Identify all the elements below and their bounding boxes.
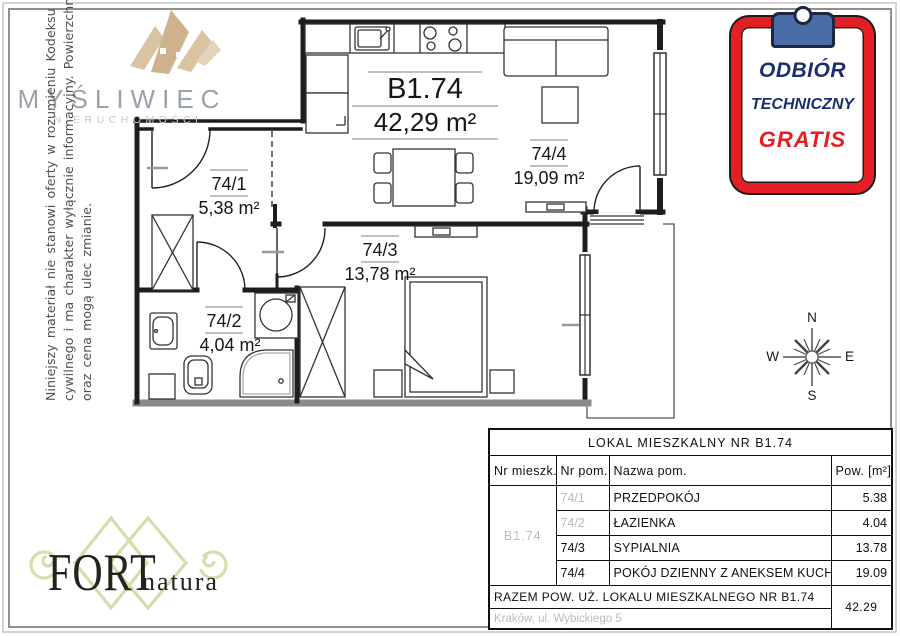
room-74-1-id: 74/1 <box>211 174 246 194</box>
room-74-2-area: 4,04 m² <box>199 335 260 355</box>
myslwiec-house-icon <box>130 10 221 74</box>
cell-room-no: 74/2 <box>556 511 609 536</box>
washing-machine <box>255 293 298 338</box>
room-74-3-id: 74/3 <box>362 240 397 260</box>
coffee-table <box>542 87 578 123</box>
developer-suffix: natura <box>142 567 219 596</box>
cell-room-area: 5.38 <box>831 486 892 511</box>
clip-hole <box>793 6 812 25</box>
kitchen-sink <box>355 27 390 50</box>
cell-room-name: POKÓJ DZIENNY Z ANEKSEM KUCHENNYM <box>609 561 831 586</box>
cell-room-area: 13.78 <box>831 536 892 561</box>
wardrobe-bedroom <box>300 287 345 397</box>
total-label: RAZEM POW. UŻ. LOKALU MIESZKALNEGO NR B1… <box>489 586 831 609</box>
header-room-no: Nr pom. <box>556 456 609 486</box>
nightstand-left <box>374 370 402 397</box>
disclaimer-line-3: oraz cena mogą ulec zmianie. <box>78 49 96 401</box>
unit-summary-table: LOKAL MIESZKALNY NR B1.74 Nr mieszk. Nr … <box>488 428 893 630</box>
kitchen-tall-cabinets <box>306 55 348 133</box>
compass-west-label: W <box>766 349 779 364</box>
myslwiec-logo: MYŚLIWIEC NIERUCHOMOŚCI <box>0 0 260 132</box>
nightstand-right <box>490 370 514 393</box>
bed <box>405 277 487 397</box>
cell-room-name: ŁAZIENKA <box>609 511 831 536</box>
toilet <box>184 356 212 394</box>
unit-id-label: B1.74 <box>387 73 463 105</box>
living-room-window <box>652 50 668 178</box>
sofa <box>504 27 608 76</box>
bedroom-window <box>578 252 592 378</box>
entrance-door <box>152 130 210 188</box>
bathroom-cabinet <box>149 374 175 399</box>
disclaimer-line-2: cywilnego i ma charakter wyłącznie infor… <box>60 49 78 401</box>
cell-room-area: 4.04 <box>831 511 892 536</box>
cell-room-no: 74/4 <box>556 561 609 586</box>
bedroom-door <box>277 228 325 277</box>
sideboard <box>526 202 586 212</box>
header-room-name: Nazwa pom. <box>609 456 831 486</box>
address: Kraków, ul. Wybickiego 5 <box>489 609 831 630</box>
shower <box>240 350 293 397</box>
developer-name: FORT <box>48 545 157 602</box>
total-area: 42.29 <box>831 586 892 630</box>
header-unit: Nr mieszk. <box>489 456 556 486</box>
fortnatura-logo: FORT natura <box>20 495 265 623</box>
table-title: LOKAL MIESZKALNY NR B1.74 <box>489 429 892 456</box>
cell-room-area: 19.09 <box>831 561 892 586</box>
compass-rose: N S W E <box>766 310 854 403</box>
bathroom-door <box>197 242 245 290</box>
room-74-2-id: 74/2 <box>206 311 241 331</box>
dining-table <box>374 149 473 206</box>
balcony-door <box>594 166 640 212</box>
compass-north-label: N <box>807 310 817 325</box>
stamp-line-1: ODBIÓR <box>731 59 874 83</box>
unit-area-label: 42,29 m² <box>374 107 477 137</box>
cell-room-no: 74/3 <box>556 536 609 561</box>
clipboard-clip-icon <box>771 12 835 48</box>
cell-room-name: PRZEDPOKÓJ <box>609 486 831 511</box>
room-74-1-area: 5,38 m² <box>198 198 259 218</box>
dresser <box>415 226 477 237</box>
table-row: B1.74 74/1 PRZEDPOKÓJ 5.38 <box>489 486 892 511</box>
compass-south-label: S <box>807 388 816 403</box>
kitchen-counter <box>305 24 505 53</box>
cell-room-no: 74/1 <box>556 486 609 511</box>
stamp-line-3: GRATIS <box>731 127 874 153</box>
header-area: Pow. [m²] <box>831 456 892 486</box>
wardrobe-hallway <box>152 215 193 290</box>
room-74-4-area: 19,09 m² <box>513 168 584 188</box>
compass-east-label: E <box>845 349 854 364</box>
technical-inspection-stamp: ODBIÓR TECHNICZNY GRATIS <box>731 17 874 193</box>
balcony-outline <box>587 224 674 418</box>
washbasin <box>150 313 177 349</box>
disclaimer-line-1: Niniejszy materiał nie stanowi oferty w … <box>42 49 60 401</box>
balcony-door-sill <box>590 214 644 227</box>
cell-room-name: SYPIALNIA <box>609 536 831 561</box>
room-74-3-area: 13,78 m² <box>344 264 415 284</box>
disclaimer-text: Niniejszy materiał nie stanowi oferty w … <box>42 49 100 401</box>
stamp-line-2: TECHNICZNY <box>731 96 874 114</box>
cell-unit-id: B1.74 <box>489 486 556 586</box>
room-74-4-id: 74/4 <box>531 144 566 164</box>
